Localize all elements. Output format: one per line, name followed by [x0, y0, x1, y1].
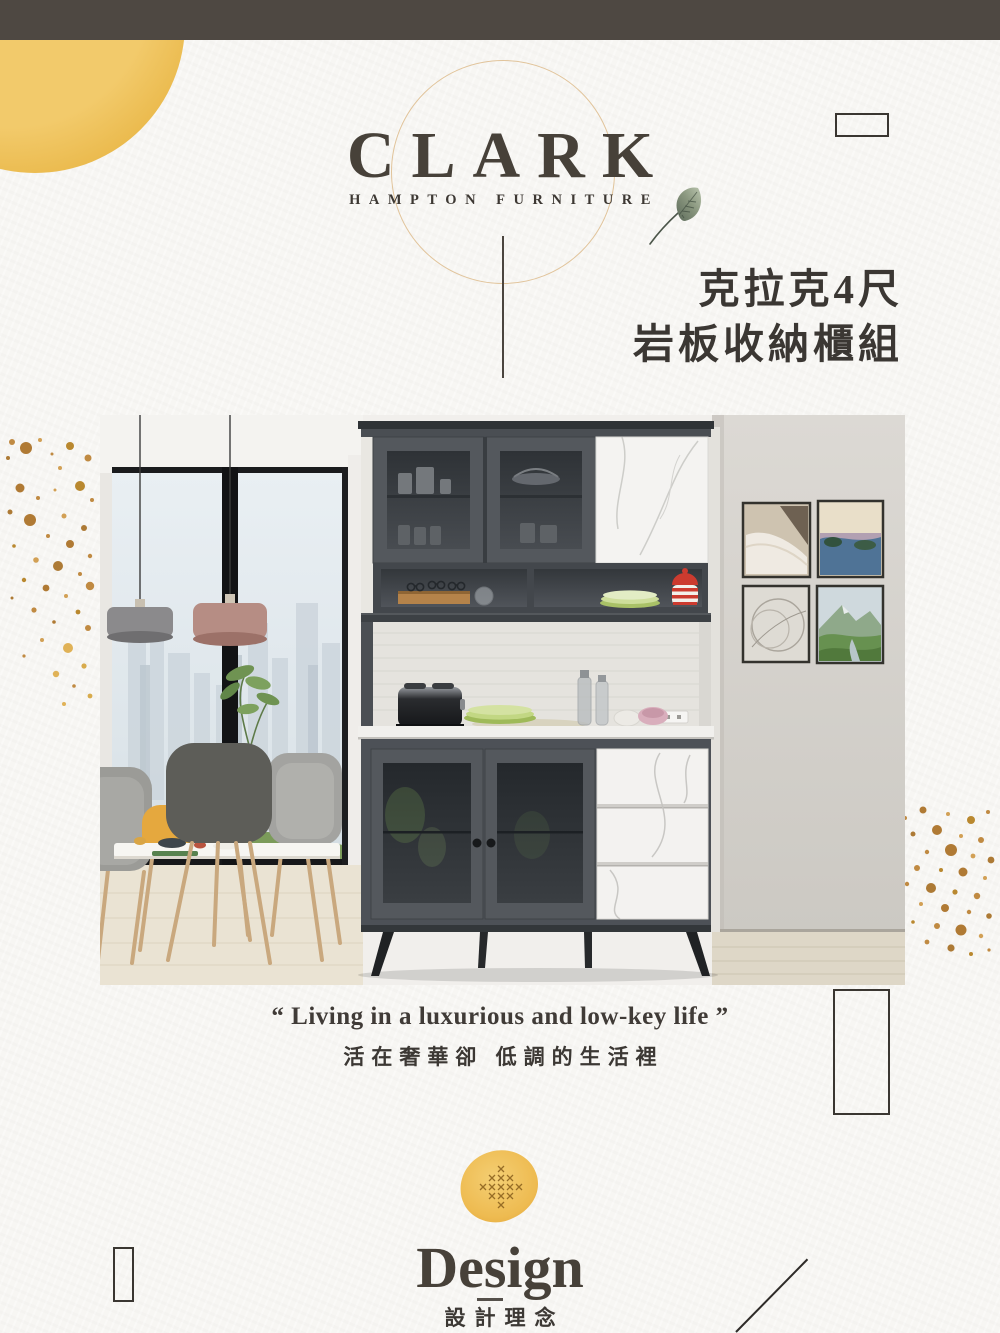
design-heading: Design [0, 1234, 1000, 1301]
upper-glass-doors [373, 437, 708, 563]
open-shelf [373, 563, 708, 613]
vertical-divider [502, 236, 504, 378]
cabinet [358, 421, 720, 982]
dining-area [100, 415, 363, 985]
page: { "brand": { "name": "CLARK", "subtitle"… [0, 0, 1000, 1333]
design-subtitle: 設計理念 [0, 1302, 1000, 1332]
product-title-line1: 克拉克4尺 [633, 262, 903, 317]
quote-chinese: 活在奢華卻 低調的生活裡 [0, 1041, 1000, 1071]
design-underline [477, 1298, 503, 1301]
top-bar [0, 0, 1000, 40]
product-photo [100, 415, 905, 985]
product-title: 克拉克4尺 岩板收納櫃組 [633, 262, 903, 371]
product-title-line2: 岩板收納櫃組 [633, 317, 903, 372]
quote-english: “ Living in a luxurious and low-key life… [0, 1003, 1000, 1031]
gold-splatter-right [893, 800, 998, 965]
product-photo-scene [100, 415, 905, 985]
gold-splatter-left [0, 428, 100, 718]
leaf-icon [646, 184, 704, 246]
ink-blob-icon [452, 1148, 550, 1232]
brand-subtitle: HAMPTON FURNITURE [0, 192, 1000, 209]
rect-outline-top [835, 113, 889, 137]
